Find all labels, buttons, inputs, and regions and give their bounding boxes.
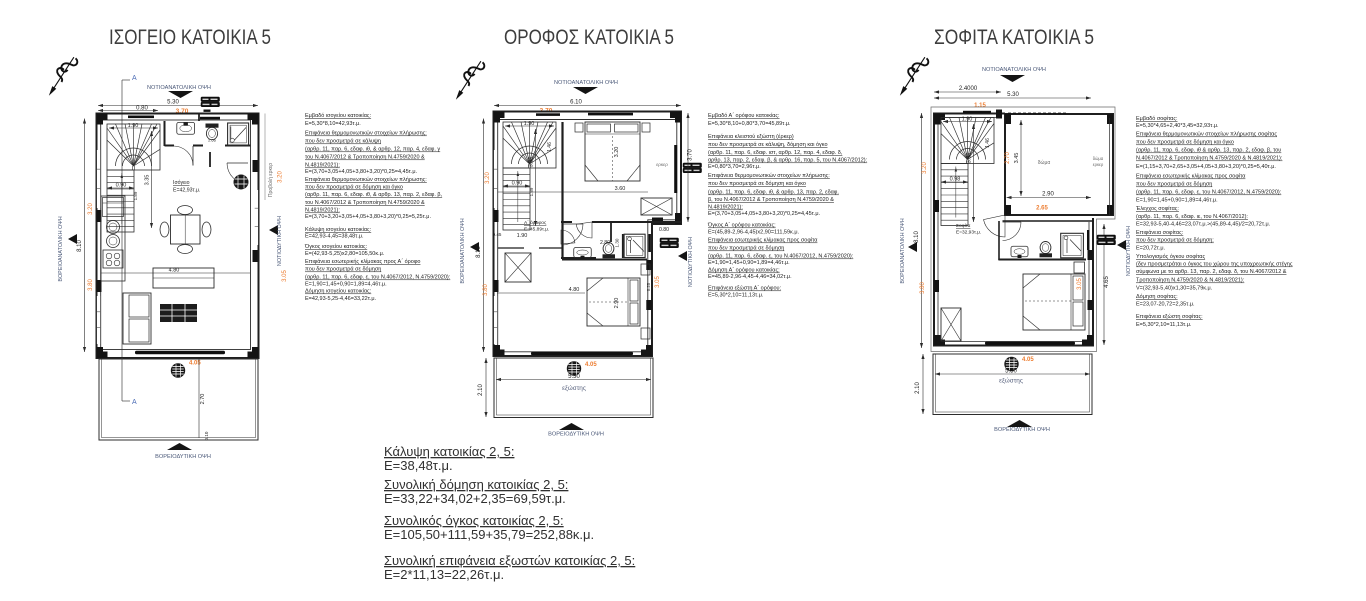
svg-text:Ε=(3,70+3,05+4,05+3,80+3,20)*0: Ε=(3,70+3,05+4,05+3,80+3,20)*0,25=4,45τ.… xyxy=(708,211,821,217)
svg-text:1.89: 1.89 xyxy=(133,191,138,200)
svg-text:Εμβαδό ισογείου κατοικίας:: Εμβαδό ισογείου κατοικίας: xyxy=(305,112,372,119)
svg-text:Ε=(45,89-2,96-4,45)x2,90=111,5: Ε=(45,89-2,96-4,45)x2,90=111,59κ.μ. xyxy=(708,230,799,236)
svg-text:Ν.4067/2012 & Τροποποίηση Ν.47: Ν.4067/2012 & Τροποποίηση Ν.4759/2020 & … xyxy=(1136,156,1283,162)
svg-text:ΝΟΤΙΟΑΝΑΤΟΛΙΚΗ ΟΨΗ: ΝΟΤΙΟΑΝΑΤΟΛΙΚΗ ΟΨΗ xyxy=(554,80,618,86)
svg-text:(αρθρ. 11, παρ. 6, εδαφ. ιθ, &: (αρθρ. 11, παρ. 6, εδαφ. ιθ, & αρθρ. 12,… xyxy=(305,147,440,153)
svg-text:Όγκος Α΄ ορόφου κατοικίας:: Όγκος Α΄ ορόφου κατοικίας: xyxy=(707,222,776,229)
svg-text:5.30: 5.30 xyxy=(568,374,580,380)
svg-text:Ε=42,93-5,25-4,46=33,22τ.μ.: Ε=42,93-5,25-4,46=33,22τ.μ. xyxy=(305,296,377,302)
svg-text:Επιφάνεια θερμομονωτικών στοιχ: Επιφάνεια θερμομονωτικών στοιχείων πλήρω… xyxy=(305,176,427,183)
svg-text:Επιφάνεια εσωτερικής κλίμακας: Επιφάνεια εσωτερικής κλίμακας προς Α΄ όρ… xyxy=(305,258,420,265)
svg-text:1.90: 1.90 xyxy=(128,123,139,129)
svg-text:3.60: 3.60 xyxy=(615,186,626,192)
svg-text:0.90: 0.90 xyxy=(512,181,523,187)
svg-text:Ε=5,30*2,10=11,13τ.μ.: Ε=5,30*2,10=11,13τ.μ. xyxy=(708,293,764,299)
svg-text:3.20: 3.20 xyxy=(88,203,94,215)
svg-text:1.90: 1.90 xyxy=(517,233,528,239)
svg-text:(δεν προσμετράται ο όγκος του: (δεν προσμετράται ο όγκος του χώρου της … xyxy=(1136,261,1293,268)
svg-text:ΒΟΡΕΙΟΔΥΤΙΚΗ ΟΨΗ: ΒΟΡΕΙΟΔΥΤΙΚΗ ΟΨΗ xyxy=(994,427,1050,433)
svg-text:Κάλυψη ισογείου κατοικίας:: Κάλυψη ισογείου κατοικίας: xyxy=(305,226,372,233)
svg-text:Ε=32,93τ.μ.: Ε=32,93τ.μ. xyxy=(956,230,981,236)
svg-text:που δεν προσμετρά σε δόμηση: που δεν προσμετρά σε δόμηση xyxy=(1136,181,1212,188)
svg-text:Επιφάνεια θερμομονωτικών στοιχ: Επιφάνεια θερμομονωτικών στοιχείων πλήρω… xyxy=(305,130,427,137)
svg-text:Ε=42,93-4,45=38,48τ.μ.: Ε=42,93-4,45=38,48τ.μ. xyxy=(305,234,364,240)
svg-text:Ε=0,80*3,70=2,96τ.μ.: Ε=0,80*3,70=2,96τ.μ. xyxy=(708,164,761,170)
svg-text:ΙΣΟΓΕΙΟ ΚΑΤΟΙΚΙΑ 5: ΙΣΟΓΕΙΟ ΚΑΤΟΙΚΙΑ 5 xyxy=(109,26,271,49)
svg-text:4.05: 4.05 xyxy=(1022,357,1034,363)
svg-text:3.80: 3.80 xyxy=(920,282,926,294)
svg-text:4.05: 4.05 xyxy=(189,361,201,367)
svg-text:Ε=105,50+111,59+35,79=252,88κ.: Ε=105,50+111,59+35,79=252,88κ.μ. xyxy=(384,527,594,542)
svg-text:Εμβαδό Α΄ ορόφου κατοικίας:: Εμβαδό Α΄ ορόφου κατοικίας: xyxy=(708,112,780,119)
svg-text:1.30: 1.30 xyxy=(615,238,620,247)
svg-text:2.90: 2.90 xyxy=(1042,192,1054,198)
svg-text:0.90: 0.90 xyxy=(116,183,127,189)
svg-text:ΒΟΡΕΙΟΔΥΤΙΚΗ ΟΨΗ: ΒΟΡΕΙΟΔΥΤΙΚΗ ΟΨΗ xyxy=(548,432,604,438)
svg-text:Ε=5,30*8,10+0,80*3,70=45,89τ.μ: Ε=5,30*8,10+0,80*3,70=45,89τ.μ. xyxy=(708,121,791,127)
svg-text:Ε=33,22+34,02+2,35=69,59τ.μ.: Ε=33,22+34,02+2,35=69,59τ.μ. xyxy=(384,491,566,506)
svg-text:Επιφάνεια σοφίτας:: Επιφάνεια σοφίτας: xyxy=(1136,229,1184,236)
svg-text:5.30: 5.30 xyxy=(1007,92,1019,98)
svg-text:3.80: 3.80 xyxy=(88,279,94,291)
svg-text:Ε=5,30*8,10=42,93τ.μ.: Ε=5,30*8,10=42,93τ.μ. xyxy=(305,121,361,127)
svg-text:ερκερ: ερκερ xyxy=(656,162,668,167)
svg-text:που δεν προσμετρά σε δόμηση κα: που δεν προσμετρά σε δόμηση και όγκο xyxy=(708,180,806,187)
svg-text:αρθρ. 13, παρ. 2, εδαφ. β, & α: αρθρ. 13, παρ. 2, εδαφ. β, & αρθρ. 16, π… xyxy=(708,158,868,164)
svg-text:ΝΟΤΙΟΔΥΤΙΚΗ ΟΨΗ: ΝΟΤΙΟΔΥΤΙΚΗ ΟΨΗ xyxy=(1126,226,1132,276)
svg-text:2.70: 2.70 xyxy=(1005,152,1011,164)
svg-text:ΝΟΤΙΟΔΥΤΙΚΗ ΟΨΗ: ΝΟΤΙΟΔΥΤΙΚΗ ΟΨΗ xyxy=(277,216,283,266)
svg-text:Ισόγειο: Ισόγειο xyxy=(173,179,190,186)
svg-text:που δεν προσμετρά σε κάλυψη, δ: που δεν προσμετρά σε κάλυψη, δόμηση και … xyxy=(708,141,828,148)
svg-text:2.65: 2.65 xyxy=(1036,206,1048,212)
svg-text:A: A xyxy=(132,399,137,406)
svg-text:3.20: 3.20 xyxy=(278,171,284,183)
svg-text:του Ν.4067/2012 & Τροποποίηση: του Ν.4067/2012 & Τροποποίηση Ν.4759/202… xyxy=(305,155,425,161)
svg-text:Ε=5,30*4,65+2,40*3,45=32,93τ.μ: Ε=5,30*4,65+2,40*3,45=32,93τ.μ. xyxy=(1136,123,1219,129)
svg-text:2.80: 2.80 xyxy=(600,240,610,246)
svg-text:(αρθρ. 11, παρ. 6, εδαφ. ε, το: (αρθρ. 11, παρ. 6, εδαφ. ε, του Ν.4067/2… xyxy=(708,254,854,260)
svg-text:Δόμηση σοφίτας:: Δόμηση σοφίτας: xyxy=(1136,293,1178,300)
svg-text:Ε=45,89-2,96-4,45-4,46=34,02τ.: Ε=45,89-2,96-4,45-4,46=34,02τ.μ. xyxy=(708,274,792,280)
svg-text:που δεν προσμετρά σε δόμηση κα: που δεν προσμετρά σε δόμηση και όγκο xyxy=(305,184,403,191)
svg-text:3.35: 3.35 xyxy=(529,157,535,168)
svg-text:Ε=1,90=1,45+0,90=1,89=4,46τ.μ.: Ε=1,90=1,45+0,90=1,89=4,46τ.μ. xyxy=(1136,198,1218,204)
svg-text:2.66: 2.66 xyxy=(208,138,217,143)
svg-text:2.90: 2.90 xyxy=(614,298,620,309)
svg-text:A: A xyxy=(132,75,137,82)
svg-text:Ε=45,89τ.μ.: Ε=45,89τ.μ. xyxy=(524,227,549,233)
svg-text:3.80: 3.80 xyxy=(483,284,489,296)
svg-text:Ε=(42,93-5,25)x2,80=105,50κ.μ.: Ε=(42,93-5,25)x2,80=105,50κ.μ. xyxy=(305,251,385,257)
svg-text:Ε=(1,15+3,70+2,65+3,05+4,05+3,: Ε=(1,15+3,70+2,65+3,05+4,05+3,80+3,20)*0… xyxy=(1136,164,1276,170)
svg-text:8.10: 8.10 xyxy=(77,240,83,252)
svg-text:V=(32,93-5,40)x1,30=35,79κ.μ.: V=(32,93-5,40)x1,30=35,79κ.μ. xyxy=(1136,286,1213,292)
svg-text:0.45: 0.45 xyxy=(493,232,502,237)
svg-text:Ε=32,93-5,40-4,46=23,07τ.μ.>(4: Ε=32,93-5,40-4,46=23,07τ.μ.>(45,89-4,45)… xyxy=(1136,222,1271,228)
svg-text:ΒΟΡΕΙΟΔΥΤΙΚΗ ΟΨΗ: ΒΟΡΕΙΟΔΥΤΙΚΗ ΟΨΗ xyxy=(155,454,211,460)
svg-text:3.20: 3.20 xyxy=(922,162,928,174)
svg-text:Ε=5,30*2,10=11,13τ.μ.: Ε=5,30*2,10=11,13τ.μ. xyxy=(1136,322,1192,328)
svg-text:(αρθρ. 11, παρ. 6, εδαφ. ιστ,: (αρθρ. 11, παρ. 6, εδαφ. ιστ, αρθρ. 12, … xyxy=(708,150,843,156)
svg-text:1.46: 1.46 xyxy=(985,138,991,148)
svg-text:2.10: 2.10 xyxy=(915,382,921,394)
svg-text:1.90: 1.90 xyxy=(962,117,973,123)
svg-text:Όγκος ισογείου κατοικίας:: Όγκος ισογείου κατοικίας: xyxy=(304,244,368,250)
svg-text:Ε=42,93τ.μ.: Ε=42,93τ.μ. xyxy=(173,188,200,194)
svg-text:που δεν προσμετρά σε δόμηση:: που δεν προσμετρά σε δόμηση: xyxy=(1136,237,1214,244)
svg-text:ΒΟΡΕΙΟΑΝΑΤΟΛΙΚΗ ΟΨΗ: ΒΟΡΕΙΟΑΝΑΤΟΛΙΚΗ ΟΨΗ xyxy=(900,218,906,283)
svg-text:3.05: 3.05 xyxy=(655,276,661,288)
svg-text:8.10: 8.10 xyxy=(914,231,920,243)
svg-text:(αρθρ. 11, παρ. 6, εδαφ. ιθ, &: (αρθρ. 11, παρ. 6, εδαφ. ιθ, & αρθρ. 13,… xyxy=(305,192,443,198)
svg-text:ΒΟΡΕΙΟΑΝΑΤΟΛΙΚΗ ΟΨΗ: ΒΟΡΕΙΟΑΝΑΤΟΛΙΚΗ ΟΨΗ xyxy=(58,216,64,281)
svg-text:Ε=23,07-20,72=2,35τ.μ.: Ε=23,07-20,72=2,35τ.μ. xyxy=(1136,302,1195,308)
svg-text:δώμα: δώμα xyxy=(1038,159,1051,166)
svg-text:2.4000: 2.4000 xyxy=(959,86,978,92)
svg-text:Επιφάνεια εσωτερικής κλίμακας: Επιφάνεια εσωτερικής κλίμακας προς σοφίτ… xyxy=(708,237,818,244)
svg-text:εξώστης: εξώστης xyxy=(999,377,1023,385)
svg-text:Ν.4819/2021):: Ν.4819/2021): xyxy=(305,163,340,169)
svg-text:Ε=(3,70+3,20+3,05+4,05+3,80+3,: Ε=(3,70+3,20+3,05+4,05+3,80+3,20)*0,25=5… xyxy=(305,214,431,220)
svg-text:Δόμηση Α΄ ορόφου κατοικίας:: Δόμηση Α΄ ορόφου κατοικίας: xyxy=(708,267,780,274)
svg-text:Ε=2*11,13=22,26τ.μ.: Ε=2*11,13=22,26τ.μ. xyxy=(384,567,504,582)
svg-text:β, του Ν.4067/2012 & Τροποποίη: β, του Ν.4067/2012 & Τροποποίηση Ν.4759/… xyxy=(708,197,834,203)
svg-text:0.98: 0.98 xyxy=(950,177,961,183)
svg-text:που δεν προσμετρά σε δόμηση: που δεν προσμετρά σε δόμηση xyxy=(708,245,784,252)
svg-text:1.15: 1.15 xyxy=(974,103,986,109)
svg-text:0.25: 0.25 xyxy=(646,282,651,291)
svg-text:Επιφάνεια θερμομονωτικών στοιχ: Επιφάνεια θερμομονωτικών στοιχείων πλήρω… xyxy=(708,172,830,179)
svg-text:Εμβαδό σοφίτας:: Εμβαδό σοφίτας: xyxy=(1136,115,1178,122)
svg-text:4.65: 4.65 xyxy=(1104,276,1110,288)
svg-text:3.45: 3.45 xyxy=(1014,153,1020,164)
svg-text:Δόμηση ισογείου κατοικίας:: Δόμηση ισογείου κατοικίας: xyxy=(305,288,372,295)
svg-text:6.10: 6.10 xyxy=(570,100,582,106)
svg-text:ΒΟΡΕΙΟΑΝΑΤΟΛΙΚΗ ΟΨΗ: ΒΟΡΕΙΟΑΝΑΤΟΛΙΚΗ ΟΨΗ xyxy=(460,218,466,283)
svg-text:(αρθρ. 11, παρ. 6, εδαφ. ε, το: (αρθρ. 11, παρ. 6, εδαφ. ε, του Ν.4067/2… xyxy=(305,275,451,281)
svg-text:Επιφάνεια εξώστη σοφίτας:: Επιφάνεια εξώστη σοφίτας: xyxy=(1136,313,1203,320)
svg-text:Ε=38,48τ.μ.: Ε=38,48τ.μ. xyxy=(384,458,453,473)
svg-text:Προβολή ερκερ: Προβολή ερκερ xyxy=(267,163,274,197)
svg-text:Ε=1,90=1,45+0,90=1,89=4,46τ.μ.: Ε=1,90=1,45+0,90=1,89=4,46τ.μ. xyxy=(305,282,387,288)
svg-text:3.20: 3.20 xyxy=(614,147,620,158)
svg-text:Ν.4819/2021):: Ν.4819/2021): xyxy=(305,208,340,214)
svg-text:3.35: 3.35 xyxy=(967,153,973,164)
svg-text:ΝΟΤΙΟΔΥΤΙΚΗ ΟΨΗ: ΝΟΤΙΟΔΥΤΙΚΗ ΟΨΗ xyxy=(688,237,694,287)
svg-text:3.70: 3.70 xyxy=(688,149,694,161)
svg-text:εξώστης: εξώστης xyxy=(562,384,586,392)
svg-text:Υπολογισμός όγκου σοφίτας: Υπολογισμός όγκου σοφίτας xyxy=(1136,253,1205,260)
svg-text:Συνολικός όγκος κατοικίας 2, 5: Συνολικός όγκος κατοικίας 2, 5: xyxy=(384,513,564,528)
svg-text:0.80: 0.80 xyxy=(136,106,148,112)
svg-text:4.80: 4.80 xyxy=(569,287,580,293)
svg-text:που δεν προσμετρά σε κάλυψη: που δεν προσμετρά σε κάλυψη xyxy=(305,138,381,145)
svg-text:(αρθρ. 11, παρ. 6, εδαφ. ιε, τ: (αρθρ. 11, παρ. 6, εδαφ. ιε, του Ν.4067/… xyxy=(1136,214,1248,220)
svg-text:Ν.4819/2021):: Ν.4819/2021): xyxy=(708,205,743,211)
svg-text:ΣΟΦΙΤΑ ΚΑΤΟΙΚΙΑ 5: ΣΟΦΙΤΑ ΚΑΤΟΙΚΙΑ 5 xyxy=(934,26,1094,49)
svg-text:Ε=(3,70+3,05+4,05+3,80+3,20)*0: Ε=(3,70+3,05+4,05+3,80+3,20)*0,25=4,45τ.… xyxy=(305,169,418,175)
svg-text:5.30: 5.30 xyxy=(1005,369,1017,375)
svg-text:του Ν.4067/2012 & Τροποποίηση: του Ν.4067/2012 & Τροποποίηση Ν.4759/202… xyxy=(305,200,425,206)
svg-text:0.80: 0.80 xyxy=(659,227,669,233)
svg-text:Έλεγχος σοφίτας:: Έλεγχος σοφίτας: xyxy=(1135,206,1179,212)
svg-text:Συνολική επιφάνεια εξωστών κατ: Συνολική επιφάνεια εξωστών κατοικίας 2, … xyxy=(384,553,635,568)
svg-text:(αρθρ. 11, παρ. 6, εδαφ. ιθ &: (αρθρ. 11, παρ. 6, εδαφ. ιθ & αρθρ. 13, … xyxy=(1136,148,1281,154)
svg-text:σύμφωνα με το αρθρ. 13, παρ. 2: σύμφωνα με το αρθρ. 13, παρ. 2, εδαφ. δ,… xyxy=(1136,268,1287,275)
svg-text:που δεν προσμετρά σε δόμηση: που δεν προσμετρά σε δόμηση xyxy=(305,266,381,273)
svg-text:3.05: 3.05 xyxy=(1077,278,1083,290)
svg-text:Συνολική δόμηση κατοικίας 2, 5: Συνολική δόμηση κατοικίας 2, 5: xyxy=(384,477,568,492)
svg-text:Επιφάνεια εσωτερικής κλίμακας: Επιφάνεια εσωτερικής κλίμακας προς σοφίτ… xyxy=(1136,173,1246,180)
svg-text:4.05: 4.05 xyxy=(585,362,597,368)
svg-text:1.90: 1.90 xyxy=(524,121,535,127)
svg-text:1.46: 1.46 xyxy=(547,142,553,152)
svg-text:2.10: 2.10 xyxy=(478,384,484,396)
svg-text:Ε=20,72τ.μ.: Ε=20,72τ.μ. xyxy=(1136,246,1166,252)
svg-text:ΝΟΤΙΟΑΝΑΤΟΛΙΚΗ ΟΨΗ: ΝΟΤΙΟΑΝΑΤΟΛΙΚΗ ΟΨΗ xyxy=(147,85,211,91)
svg-text:0.10: 0.10 xyxy=(204,431,209,440)
svg-text:Ε=1,90=1,45+0,90=1,89=4,46τ.μ.: Ε=1,90=1,45+0,90=1,89=4,46τ.μ. xyxy=(708,260,790,266)
svg-text:Τροποποίηση Ν.4759/2020 & Ν.4: Τροποποίηση Ν.4759/2020 & Ν.4819/2021): xyxy=(1136,278,1245,284)
svg-text:που δεν προσμετρά σε δόμηση κα: που δεν προσμετρά σε δόμηση και όγκο xyxy=(1136,139,1234,146)
svg-text:Επιφάνεια κλειστού εξώστη (έρκ: Επιφάνεια κλειστού εξώστη (έρκερ) xyxy=(708,133,794,140)
svg-text:ΟΡΟΦΟΣ ΚΑΤΟΙΚΙΑ 5: ΟΡΟΦΟΣ ΚΑΤΟΙΚΙΑ 5 xyxy=(504,26,674,49)
svg-text:2.70: 2.70 xyxy=(200,394,206,405)
svg-text:Α΄ όροφος: Α΄ όροφος xyxy=(524,219,547,226)
svg-text:5.30: 5.30 xyxy=(167,100,179,106)
svg-text:(αρθρ. 11, παρ. 6, εδαφ. ε, το: (αρθρ. 11, παρ. 6, εδαφ. ε, του Ν.4067/2… xyxy=(1136,190,1282,196)
svg-text:3.20: 3.20 xyxy=(485,172,491,184)
svg-text:(αρθρ. 11, παρ. 6, εδαφ. ιθ,: (αρθρ. 11, παρ. 6, εδαφ. ιθ, & αρθρ. 13,… xyxy=(708,190,839,196)
svg-text:Επιφάνεια θερμομονωτικών στοιχ: Επιφάνεια θερμομονωτικών στοιχείων πλήρω… xyxy=(1136,131,1277,138)
svg-text:Επιφάνεια εξώστη Α΄ ορόφου:: Επιφάνεια εξώστη Α΄ ορόφου: xyxy=(708,285,782,292)
svg-text:3.35: 3.35 xyxy=(145,175,151,186)
svg-text:3.05: 3.05 xyxy=(282,270,288,282)
svg-text:δώμα: δώμα xyxy=(1093,156,1104,161)
svg-text:ερκερ: ερκερ xyxy=(1093,162,1104,167)
svg-text:Σοφίτα: Σοφίτα xyxy=(956,223,971,229)
svg-text:ΝΟΤΙΟΑΝΑΤΟΛΙΚΗ ΟΨΗ: ΝΟΤΙΟΑΝΑΤΟΛΙΚΗ ΟΨΗ xyxy=(982,67,1046,73)
svg-text:Κάλυψη κατοικίας 2, 5:: Κάλυψη κατοικίας 2, 5: xyxy=(384,444,514,459)
